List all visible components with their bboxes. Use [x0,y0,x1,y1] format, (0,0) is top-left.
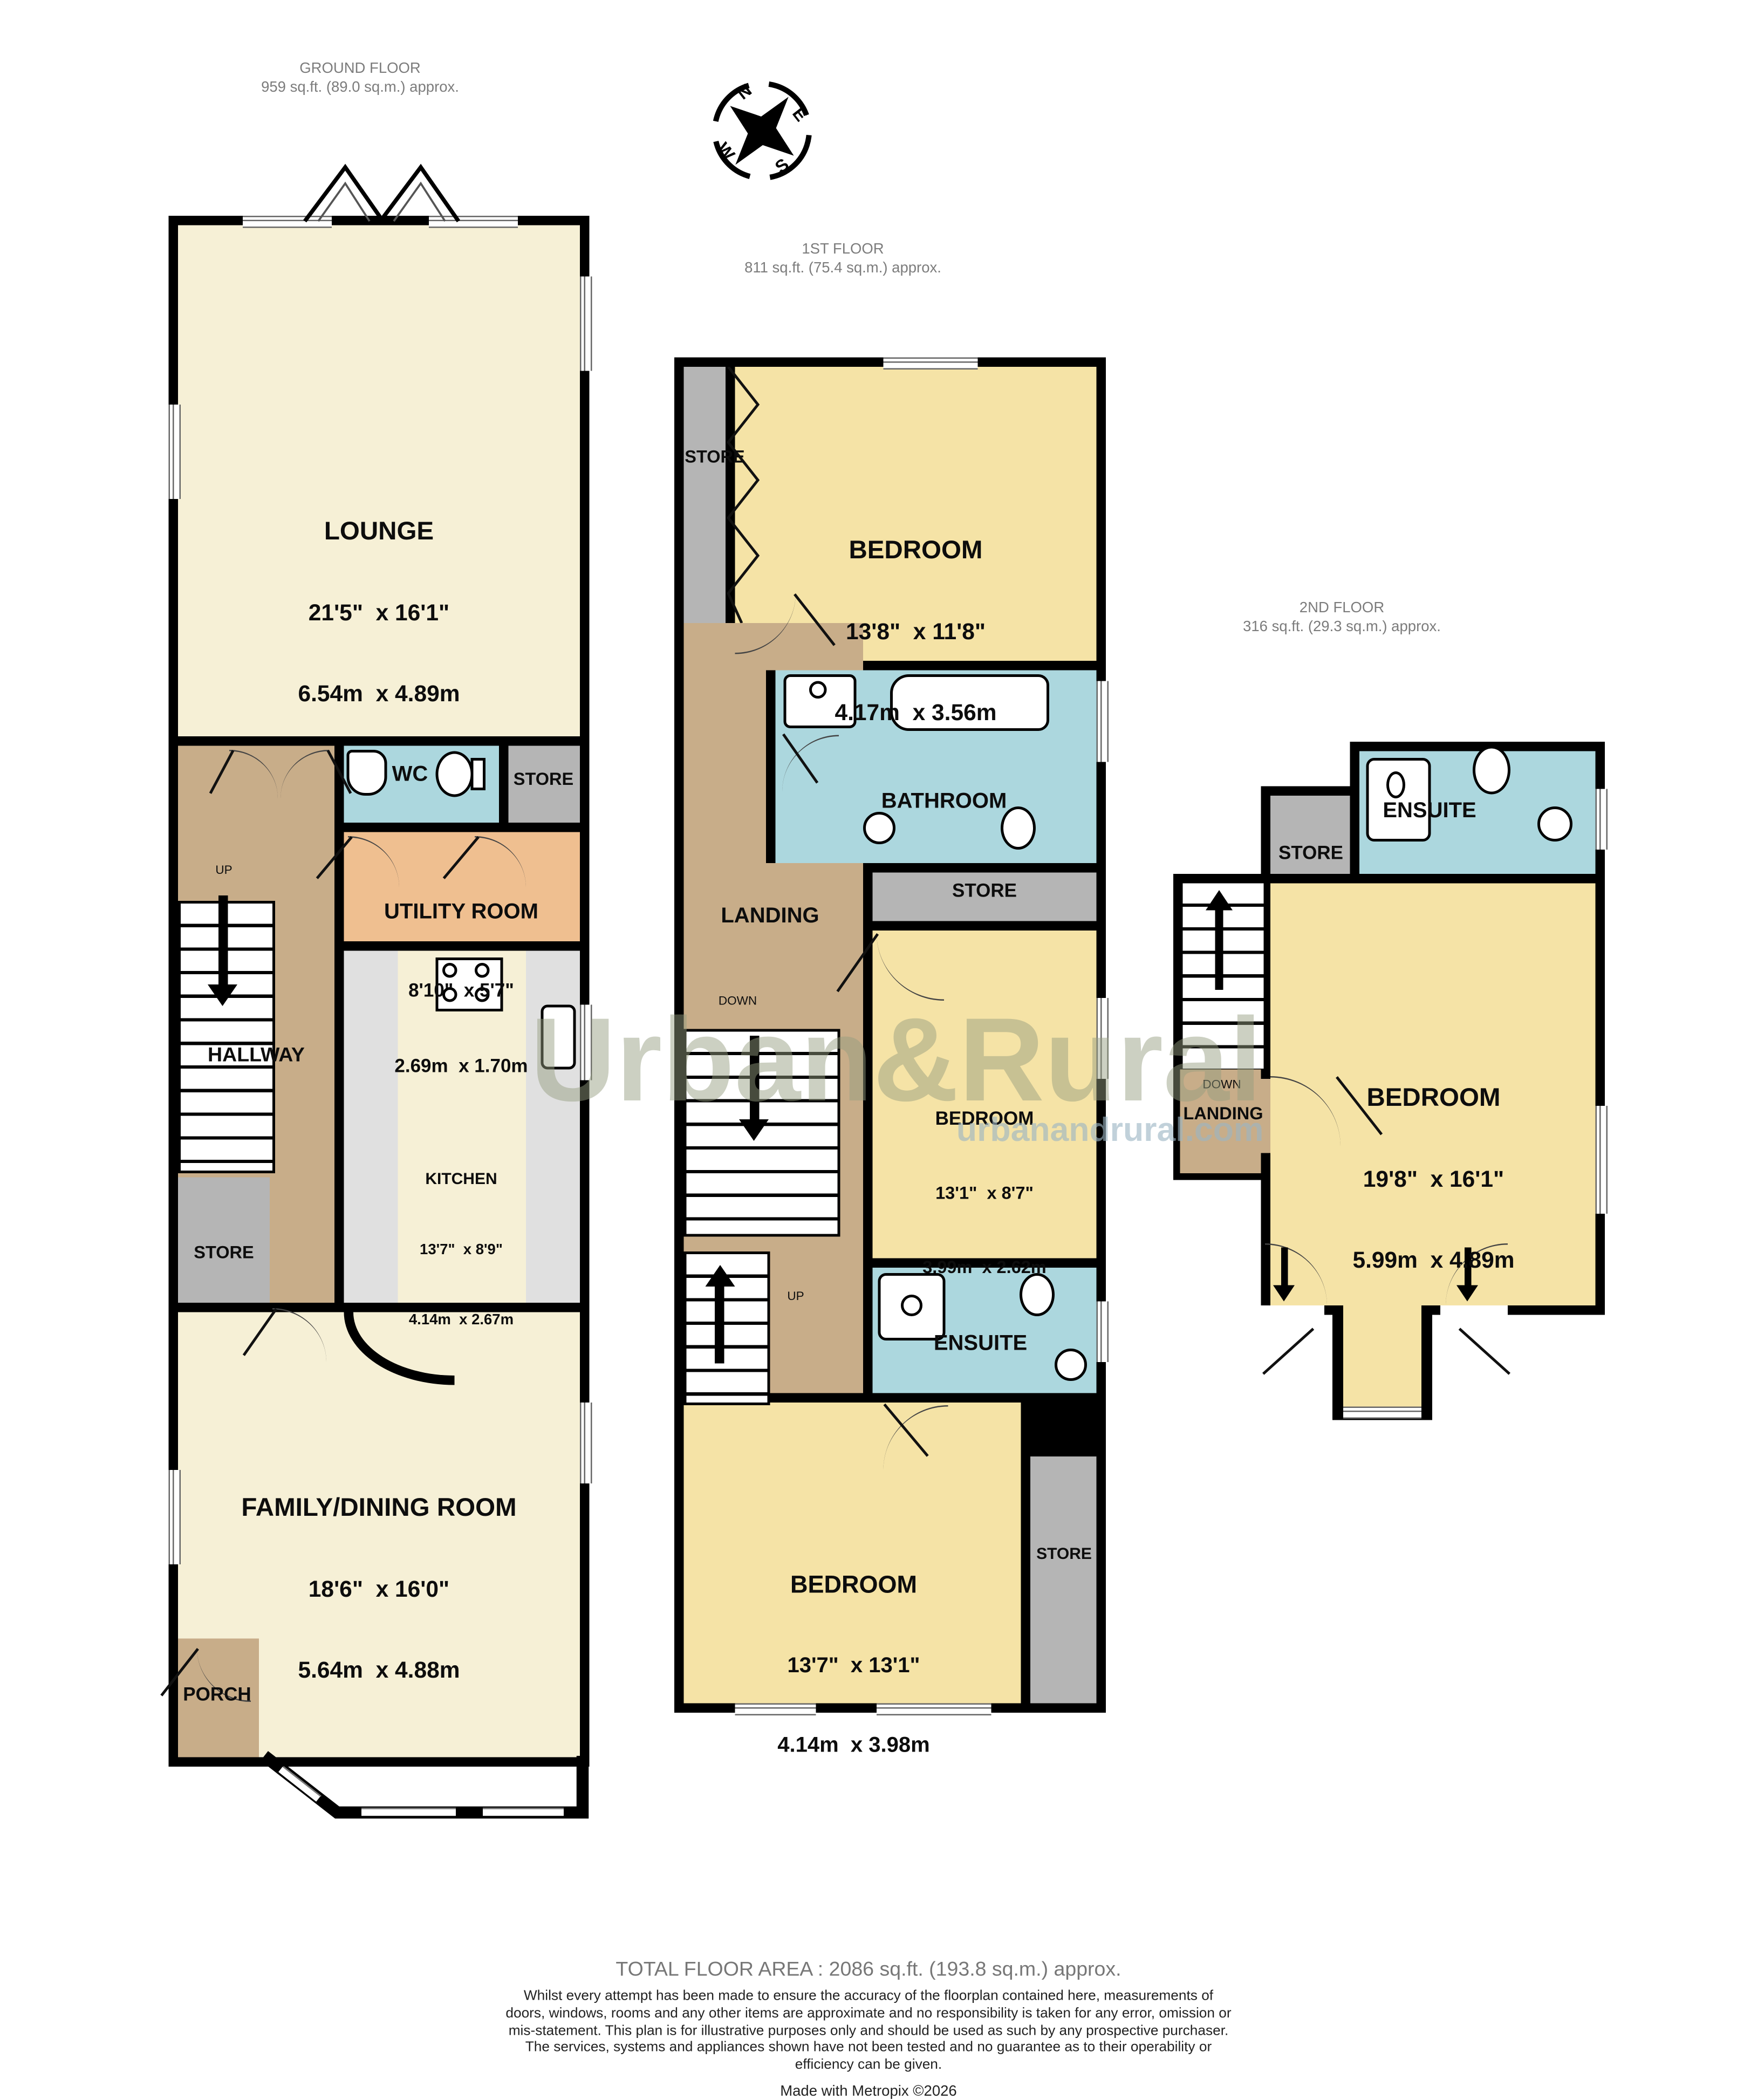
window [1097,1302,1109,1363]
ground-floor-title: GROUND FLOOR [172,59,549,79]
first-floor-title: 1ST FLOOR [647,240,1038,259]
hallway-label: HALLWAY [175,1044,337,1069]
credit-text: Made with Metropix ©2026 [599,2084,1138,2100]
landing-label: LANDING [1162,1103,1284,1125]
stairs-arrow-head [739,1119,769,1141]
room-store-1f-top [684,367,726,623]
window [580,1403,592,1483]
gable-roof-icon [299,156,464,224]
stairs-arrow [218,895,228,984]
store-label: STORE [1264,842,1358,865]
window [580,277,592,371]
room-store-1f-right [1030,1456,1097,1704]
window [1596,1106,1608,1214]
compass-n: N [733,80,755,104]
window [169,1470,181,1564]
disclaimer-text: Whilst every attempt has been made to en… [504,1988,1233,2074]
bedroom-1f-bottom-label: BEDROOM 13'7" x 13'1" 4.14m x 3.98m [692,1518,1016,1811]
ensuite-label: ENSUITE [906,1331,1055,1358]
window [1343,1407,1421,1419]
room-store-ground-left [178,1178,270,1303]
bay-window [254,1748,593,1826]
compass-e: E [789,104,811,125]
ground-floor-area: 959 sq.ft. (89.0 sq.m.) approx. [172,79,549,98]
second-floor-title: 2ND FLOOR [1146,599,1537,618]
stairs-arrow [715,1285,724,1364]
stairs-arrow-head [1206,890,1233,911]
bathroom-label: BATHROOM [836,789,1052,816]
first-floor-area: 811 sq.ft. (75.4 sq.m.) approx. [647,259,1038,279]
door-leaf [1459,1328,1510,1374]
landing-label: LANDING [696,904,844,930]
ensuite-label: ENSUITE [1356,798,1504,825]
shower-head-icon [1386,771,1405,798]
lounge-label: LOUNGE 21'5" x 16'1" 6.54m x 4.89m [204,464,555,762]
store-label: STORE [668,447,762,468]
wc-label: WC [370,762,450,789]
hand-basin-icon [863,812,895,844]
first-floor-header: 1ST FLOOR 811 sq.ft. (75.4 sq.m.) approx… [647,240,1038,278]
bedroom-2f-label: BEDROOM 19'8" x 16'1" 5.99m x 4.89m [1272,1030,1596,1328]
kitchen-label: KITCHEN 13'7" x 8'9" 4.14m x 2.67m [380,1117,542,1383]
utility-label: UTILITY ROOM 8'10" x 5'7" 2.69m x 1.70m [326,847,596,1130]
second-floor-header: 2ND FLOOR 316 sq.ft. (29.3 sq.m.) approx… [1146,599,1537,637]
porch-label: PORCH [170,1683,264,1706]
ground-stairs-up-label: UP [197,863,251,878]
down-label: DOWN [1188,1078,1256,1092]
floorplan-page: GROUND FLOOR 959 sq.ft. (89.0 sq.m.) app… [0,0,1737,2076]
stairs-arrow [750,1036,760,1119]
compass-rose-icon: N E S W [704,70,820,186]
hand-basin-icon [1055,1349,1087,1381]
store-label: STORE [177,1242,271,1264]
up-label: UP [769,1289,823,1304]
toilet-icon [1473,746,1510,795]
ground-floor-header: GROUND FLOOR 959 sq.ft. (89.0 sq.m.) app… [172,59,549,98]
bedroom-1f-mid-label: BEDROOM 13'1" x 8'7" 3.99m x 2.62m [884,1055,1086,1331]
down-label: DOWN [697,994,778,1009]
total-floor-area: TOTAL FLOOR AREA : 2086 sq.ft. (193.8 sq… [464,1958,1273,1981]
door-leaf [1262,1328,1314,1374]
window [169,405,181,499]
store-label: STORE [1028,1544,1100,1564]
window [1596,789,1608,850]
bedroom-1f-top-label: BEDROOM 13'8" x 11'8" 4.17m x 3.56m [754,483,1078,781]
wc-toilet-cistern-icon [471,758,486,790]
window [884,358,978,370]
stairs-arrow [1215,909,1223,990]
store-label: STORE [931,879,1038,902]
window [1097,998,1109,1079]
store-label: STORE [496,769,591,790]
hand-basin-icon [1537,806,1572,842]
second-floor-area: 316 sq.ft. (29.3 sq.m.) approx. [1146,618,1537,638]
stairs-arrow-head [706,1265,735,1287]
stairs-arrow-head [208,984,237,1006]
window [1097,681,1109,762]
